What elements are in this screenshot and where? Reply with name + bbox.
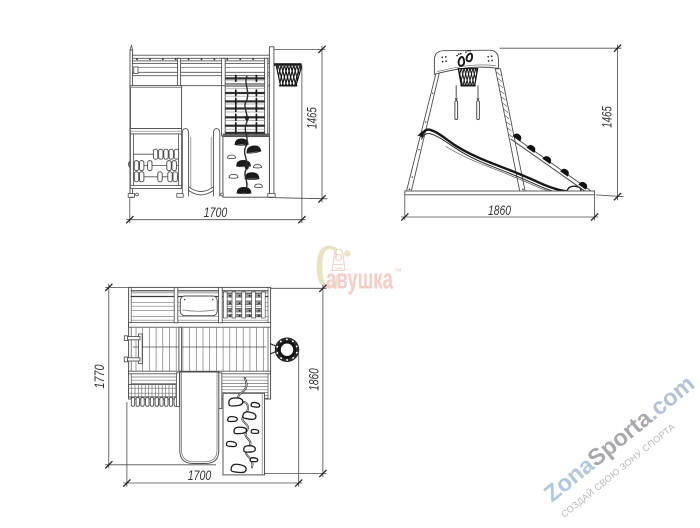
svg-text:ZonaSporta.com: ZonaSporta.com	[539, 370, 699, 507]
svg-text:1700: 1700	[204, 204, 228, 220]
svg-text:тм: тм	[395, 267, 402, 273]
svg-text:1465: 1465	[303, 107, 319, 129]
svg-text:1700: 1700	[188, 467, 212, 483]
svg-text:1860: 1860	[488, 202, 511, 218]
svg-text:авушка: авушка	[326, 264, 394, 296]
svg-text:1860: 1860	[306, 368, 322, 391]
svg-text:1770: 1770	[91, 364, 107, 388]
svg-text:1465: 1465	[598, 106, 614, 128]
